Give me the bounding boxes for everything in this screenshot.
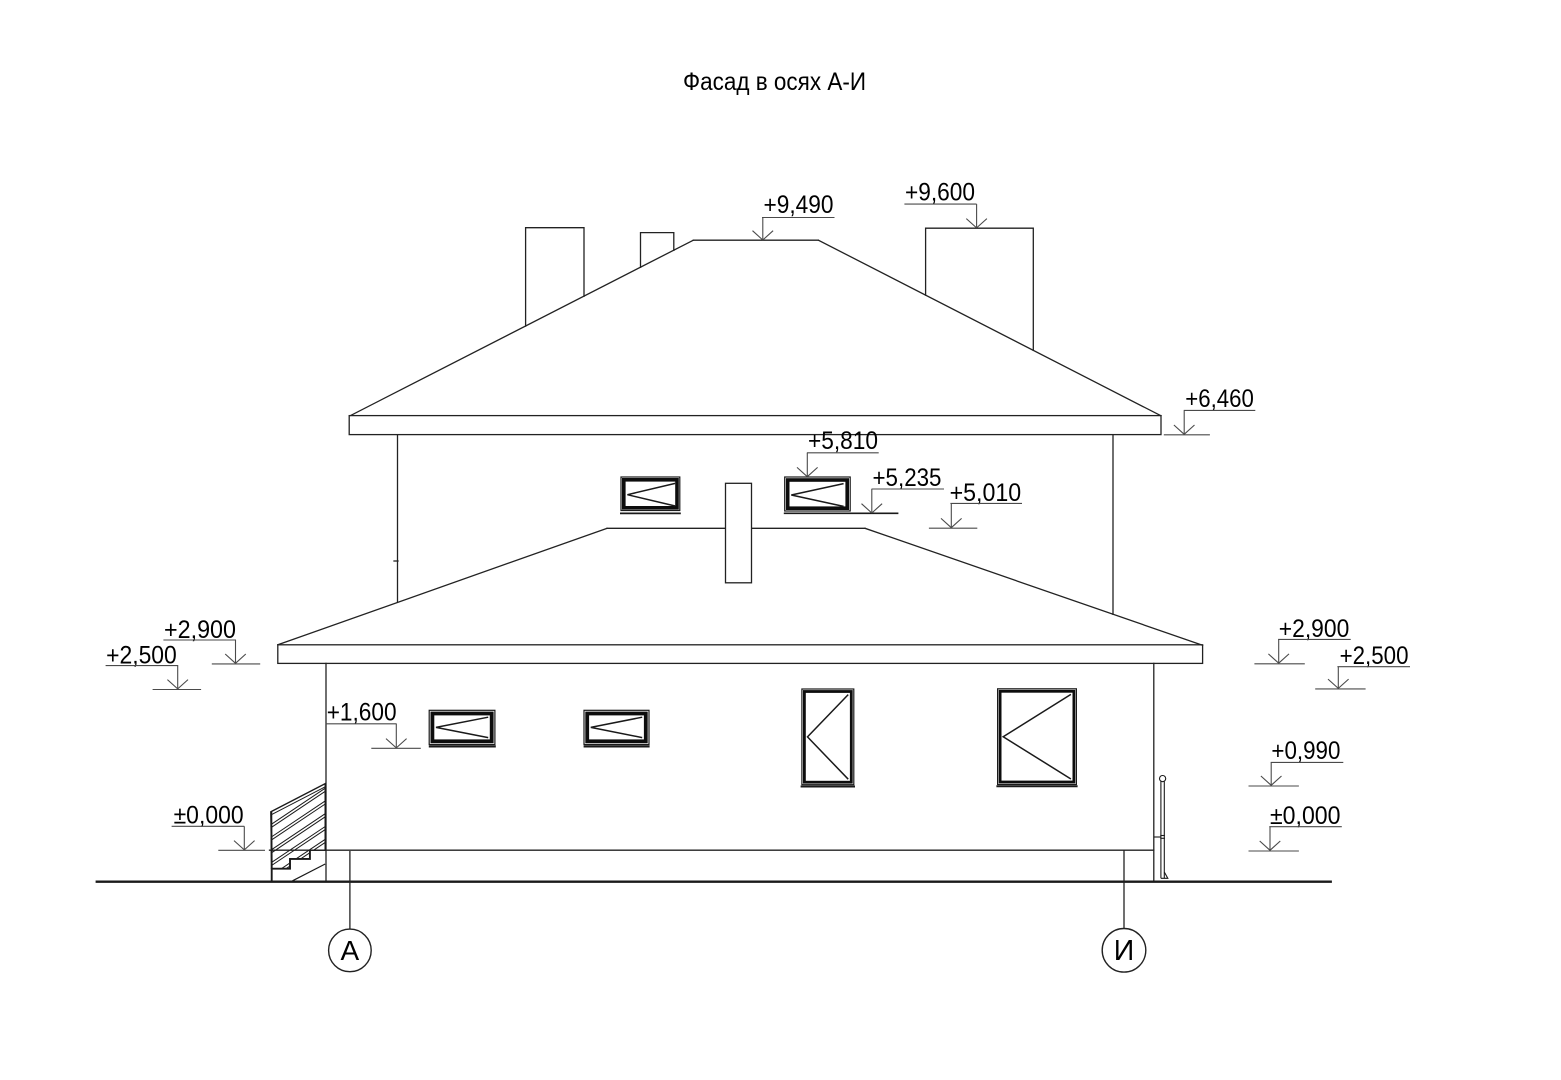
svg-text:+5,235: +5,235 — [873, 465, 942, 492]
svg-text:±0,000: ±0,000 — [1270, 803, 1341, 830]
svg-text:+5,810: +5,810 — [808, 428, 878, 455]
svg-text:Фасад в осях А-И: Фасад в осях А-И — [683, 69, 866, 96]
svg-text:+5,010: +5,010 — [950, 480, 1022, 507]
svg-text:+0,990: +0,990 — [1271, 738, 1340, 765]
svg-text:±0,000: ±0,000 — [174, 802, 244, 829]
svg-text:+1,600: +1,600 — [327, 699, 397, 726]
svg-text:+9,600: +9,600 — [905, 179, 975, 206]
svg-text:А: А — [341, 935, 360, 966]
svg-text:+2,500: +2,500 — [1340, 643, 1409, 670]
svg-text:И: И — [1114, 935, 1134, 967]
svg-text:+6,460: +6,460 — [1185, 386, 1254, 413]
svg-text:+9,490: +9,490 — [764, 192, 834, 219]
